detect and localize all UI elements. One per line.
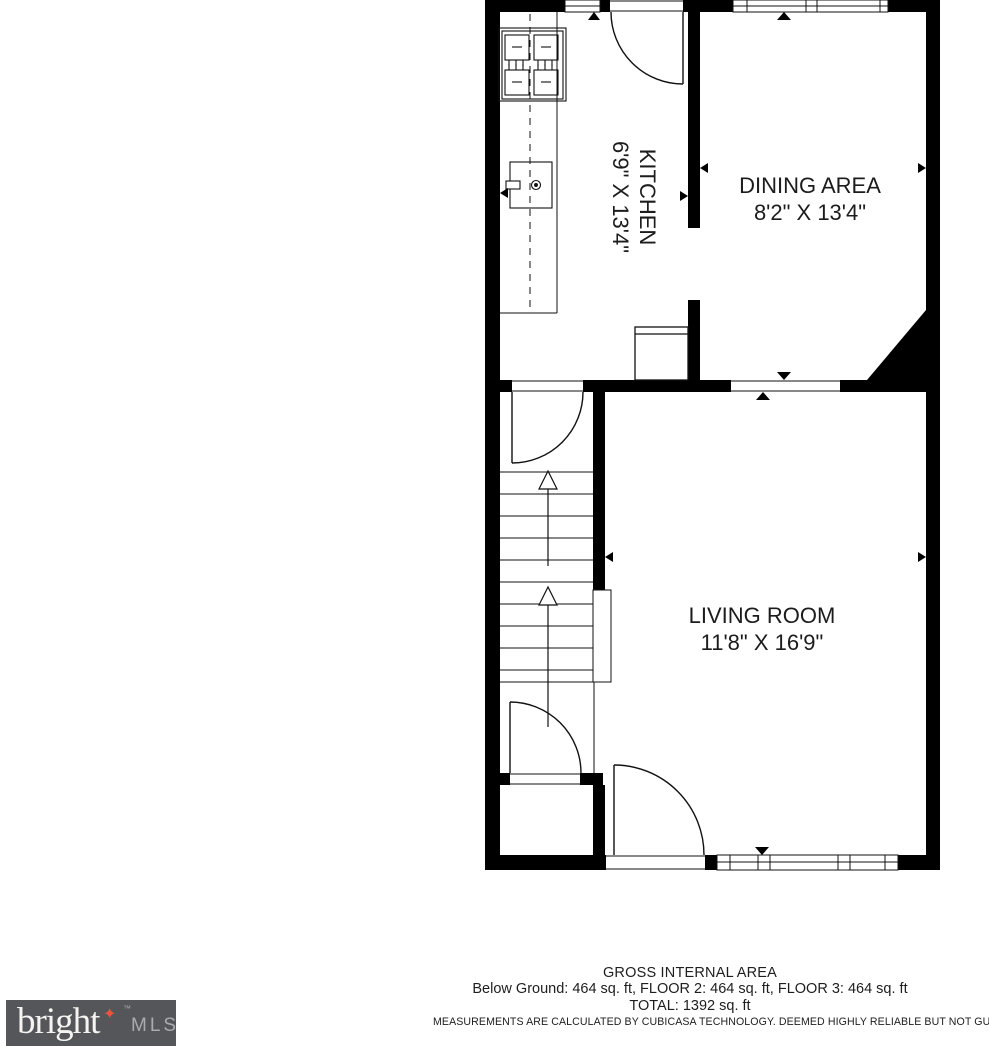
marker-right-dining-icon [918, 163, 926, 173]
dining-window-icon [733, 0, 888, 12]
wall-stair-bottom-b [580, 773, 603, 785]
wall-mid-a [485, 380, 512, 392]
total-area-text: TOTAL: 1392 sq. ft [390, 998, 989, 1014]
marker-down-living-icon [755, 847, 769, 855]
marker-up-kitchen-icon [588, 12, 600, 20]
logo-mls-text: MLS [131, 1015, 179, 1037]
stair-treads [500, 472, 594, 682]
wall-left [485, 0, 500, 870]
wall-mid-c [840, 380, 926, 392]
wall-vestibule-right [593, 785, 605, 855]
gross-internal-area-title: GROSS INTERNAL AREA [390, 965, 989, 981]
marker-up-passage-icon [756, 392, 770, 400]
wall-stair-living [593, 380, 605, 590]
fridge-icon [635, 327, 688, 380]
windows [565, 0, 898, 870]
floor-areas-text: Below Ground: 464 sq. ft, FLOOR 2: 464 s… [390, 981, 989, 997]
exterior-walls [485, 0, 940, 870]
wall-bottom-b [705, 855, 717, 870]
stove-icon [499, 28, 566, 101]
wall-top-d [888, 0, 938, 12]
wall-kitchen-dining-bottom [688, 300, 700, 392]
sink-icon [506, 162, 552, 208]
bright-mls-logo: bright ✦ ™ MLS [6, 1000, 176, 1046]
room-label-living: LIVING ROOM 11'8" X 16'9" [689, 603, 836, 655]
wall-top-b [600, 0, 610, 12]
room-labels: KITCHEN 6'9" X 13'4" DINING AREA 8'2" X … [608, 141, 881, 655]
logo-brand-text: bright [17, 1000, 99, 1043]
living-dims: 11'8" X 16'9" [701, 630, 824, 655]
wall-top-a [485, 0, 565, 12]
wall-mid-b [583, 380, 731, 392]
stair-arrow-up-1 [539, 471, 557, 566]
stair-arrow-up-2 [539, 587, 557, 727]
wall-bottom-c [898, 855, 940, 870]
wall-corner-chamfer [867, 310, 926, 380]
under-stair-ledge [593, 590, 611, 682]
room-label-kitchen: KITCHEN 6'9" X 13'4" [608, 141, 660, 253]
logo-star-icon: ✦ [103, 1004, 116, 1023]
opening-frames [510, 1, 840, 869]
stairs-top-door-icon [512, 392, 583, 463]
wall-bottom-a [485, 855, 606, 870]
logo-trademark: ™ [123, 1004, 131, 1013]
dining-dims: 8'2" X 13'4" [754, 200, 866, 225]
measure-markers [500, 12, 926, 855]
interior-walls [485, 0, 926, 855]
doors [510, 12, 704, 855]
marker-right-kitchen-icon [680, 191, 688, 201]
floorplan-page: KITCHEN 6'9" X 13'4" DINING AREA 8'2" X … [0, 0, 989, 1046]
wall-kitchen-dining-top [688, 0, 700, 228]
measurement-disclaimer: MEASUREMENTS ARE CALCULATED BY CUBICASA … [433, 1016, 989, 1028]
marker-left-dining-icon [700, 163, 708, 173]
marker-right-living-icon [918, 552, 926, 562]
wall-stair-bottom-a [498, 773, 510, 785]
marker-down-passage-icon [777, 372, 791, 380]
marker-left-kitchen-icon [500, 188, 508, 198]
kitchen-dims: 6'9" X 13'4" [608, 141, 633, 253]
floorplan-drawing: KITCHEN 6'9" X 13'4" DINING AREA 8'2" X … [0, 0, 989, 1046]
wall-right [926, 0, 940, 870]
room-label-dining: DINING AREA 8'2" X 13'4" [739, 173, 881, 225]
dining-name: DINING AREA [739, 173, 881, 198]
marker-left-living-icon [605, 552, 613, 562]
stairs-bottom-door-icon [510, 702, 581, 773]
kitchen-name: KITCHEN [635, 149, 660, 246]
living-room-door-icon [614, 765, 704, 855]
living-window-icon [717, 855, 898, 870]
kitchen-window-icon [565, 0, 600, 12]
marker-up-dining-icon [777, 12, 791, 20]
living-name: LIVING ROOM [689, 603, 836, 628]
kitchen-entry-door-icon [611, 12, 683, 84]
